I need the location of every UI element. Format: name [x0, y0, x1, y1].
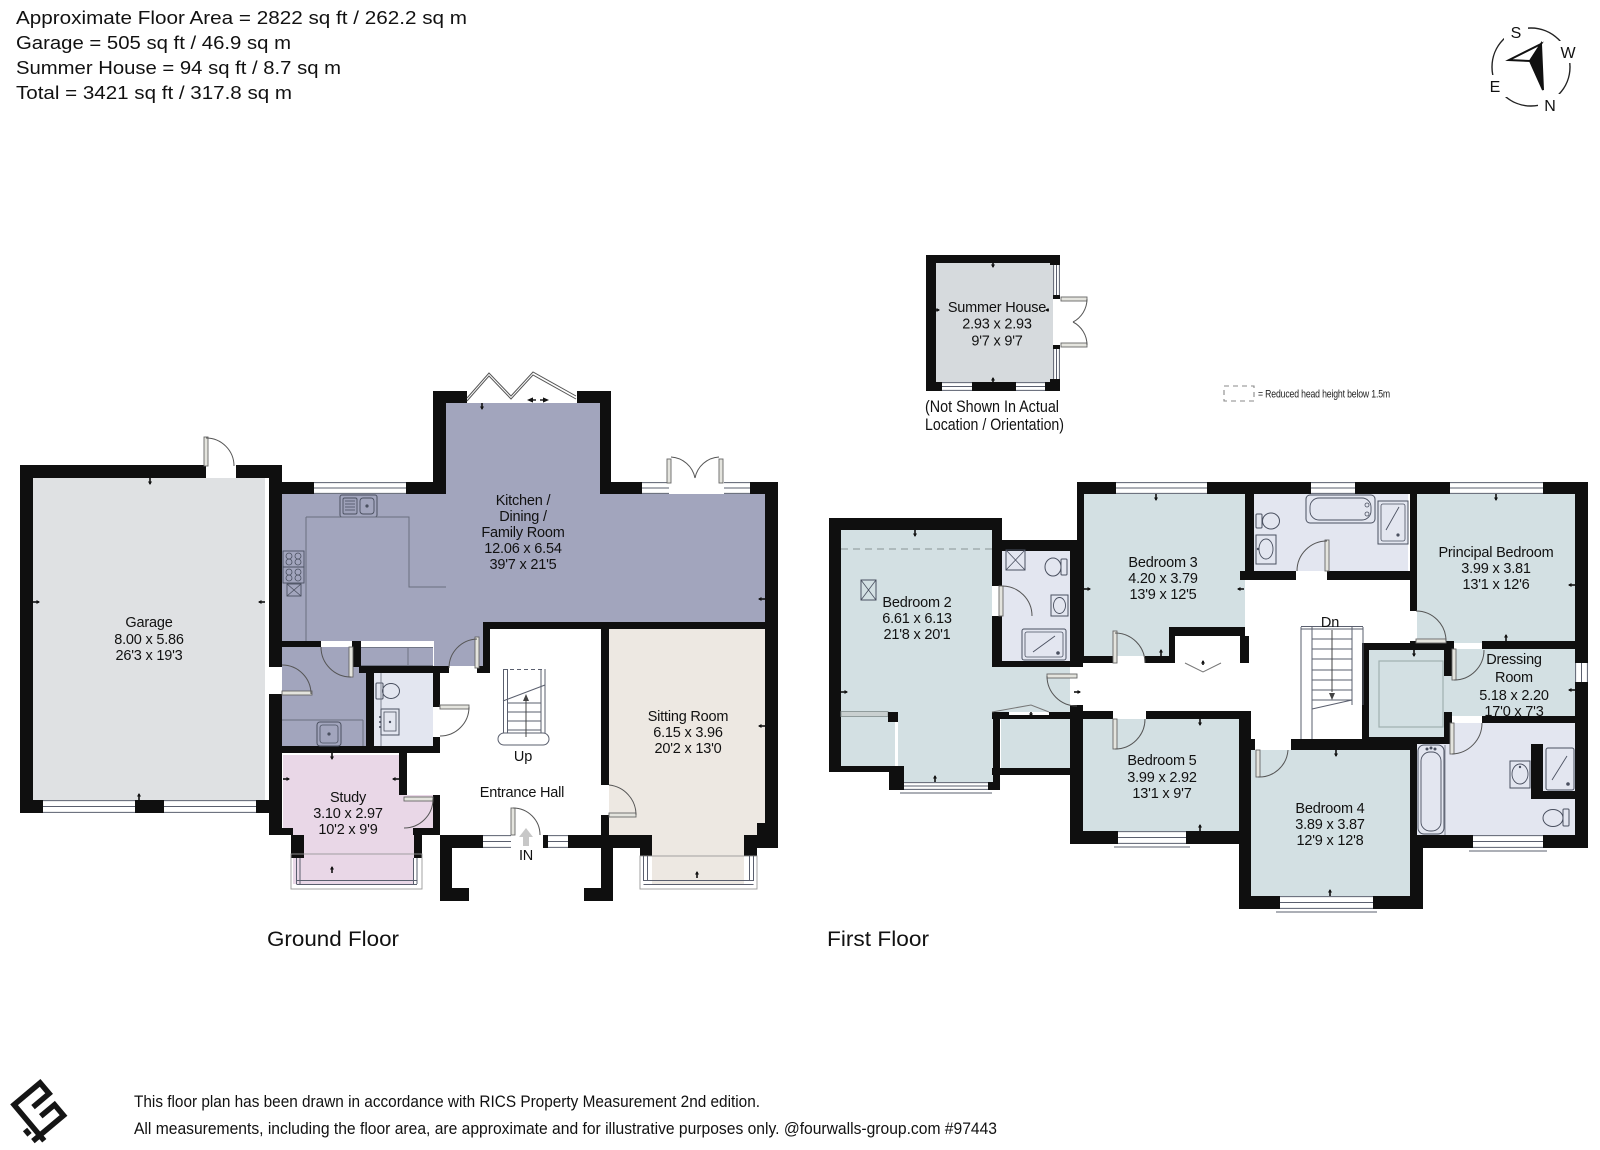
svg-text:3.99 x 3.81: 3.99 x 3.81: [1461, 561, 1531, 577]
svg-text:13'1 x 9'7: 13'1 x 9'7: [1132, 786, 1191, 802]
svg-text:Family Room: Family Room: [481, 525, 564, 541]
svg-text:5.18 x 2.20: 5.18 x 2.20: [1479, 688, 1549, 704]
svg-text:6.15 x 3.96: 6.15 x 3.96: [653, 725, 723, 741]
svg-text:6.61 x 6.13: 6.61 x 6.13: [882, 611, 952, 627]
svg-text:12'9 x 12'8: 12'9 x 12'8: [1296, 833, 1363, 849]
svg-text:Approximate Floor Area = 2822: Approximate Floor Area = 2822 sq ft / 26…: [16, 7, 467, 28]
svg-text:4.20 x 3.79: 4.20 x 3.79: [1128, 571, 1198, 587]
svg-text:Principal Bedroom: Principal Bedroom: [1438, 545, 1553, 561]
svg-text:This floor plan has been drawn: This floor plan has been drawn in accord…: [134, 1092, 760, 1111]
svg-text:Location / Orientation): Location / Orientation): [925, 416, 1064, 434]
svg-text:Bedroom 2: Bedroom 2: [882, 595, 951, 611]
svg-text:Study: Study: [330, 790, 367, 806]
svg-text:26'3 x 19'3: 26'3 x 19'3: [115, 648, 182, 664]
svg-text:(Not Shown In Actual: (Not Shown In Actual: [925, 398, 1059, 416]
svg-text:Garage = 505 sq ft / 46.9 sq m: Garage = 505 sq ft / 46.9 sq m: [16, 32, 291, 53]
svg-text:Bedroom 3: Bedroom 3: [1128, 555, 1197, 571]
svg-text:Summer House = 94 sq ft / 8.7: Summer House = 94 sq ft / 8.7 sq m: [16, 57, 341, 78]
svg-text:Garage: Garage: [125, 615, 172, 631]
svg-text:Bedroom 4: Bedroom 4: [1295, 801, 1364, 817]
svg-text:All measurements, including th: All measurements, including the floor ar…: [134, 1119, 997, 1138]
svg-text:Summer House: Summer House: [948, 300, 1046, 316]
svg-text:Dining /: Dining /: [499, 509, 548, 525]
svg-text:17'0 x 7'3: 17'0 x 7'3: [1484, 704, 1543, 720]
svg-text:S: S: [1511, 25, 1522, 42]
svg-text:First Floor: First Floor: [827, 928, 929, 951]
svg-text:20'2 x 13'0: 20'2 x 13'0: [654, 741, 721, 757]
svg-text:W: W: [1560, 45, 1576, 62]
svg-text:= Reduced head height below 1.: = Reduced head height below 1.5m: [1258, 389, 1390, 401]
svg-text:2.93 x 2.93: 2.93 x 2.93: [962, 317, 1032, 333]
svg-text:IN: IN: [519, 848, 533, 864]
svg-text:Entrance Hall: Entrance Hall: [480, 785, 564, 801]
svg-text:Kitchen /: Kitchen /: [496, 493, 552, 509]
svg-text:Bedroom 5: Bedroom 5: [1127, 753, 1196, 769]
svg-text:Sitting Room: Sitting Room: [648, 709, 729, 725]
svg-text:Dn: Dn: [1321, 615, 1339, 631]
svg-text:9'7 x 9'7: 9'7 x 9'7: [971, 334, 1022, 350]
svg-text:8.00 x 5.86: 8.00 x 5.86: [114, 632, 184, 648]
svg-text:3.89 x 3.87: 3.89 x 3.87: [1295, 817, 1365, 833]
svg-text:39'7 x 21'5: 39'7 x 21'5: [489, 557, 556, 573]
svg-text:Total = 3421 sq ft / 317.8 sq: Total = 3421 sq ft / 317.8 sq m: [16, 82, 292, 103]
svg-text:Ground Floor: Ground Floor: [267, 928, 399, 951]
svg-text:3.99 x 2.92: 3.99 x 2.92: [1127, 770, 1197, 786]
svg-text:3.10 x 2.97: 3.10 x 2.97: [313, 806, 383, 822]
svg-text:21'8 x 20'1: 21'8 x 20'1: [883, 627, 950, 643]
svg-text:13'9 x 12'5: 13'9 x 12'5: [1129, 587, 1196, 603]
svg-text:Up: Up: [514, 749, 532, 765]
svg-text:E: E: [1490, 79, 1501, 96]
svg-text:13'1 x 12'6: 13'1 x 12'6: [1462, 577, 1529, 593]
svg-text:Room: Room: [1495, 670, 1533, 686]
svg-text:10'2 x 9'9: 10'2 x 9'9: [318, 822, 377, 838]
svg-text:Dressing: Dressing: [1486, 652, 1542, 668]
svg-text:N: N: [1544, 98, 1556, 115]
svg-text:12.06 x 6.54: 12.06 x 6.54: [484, 541, 562, 557]
